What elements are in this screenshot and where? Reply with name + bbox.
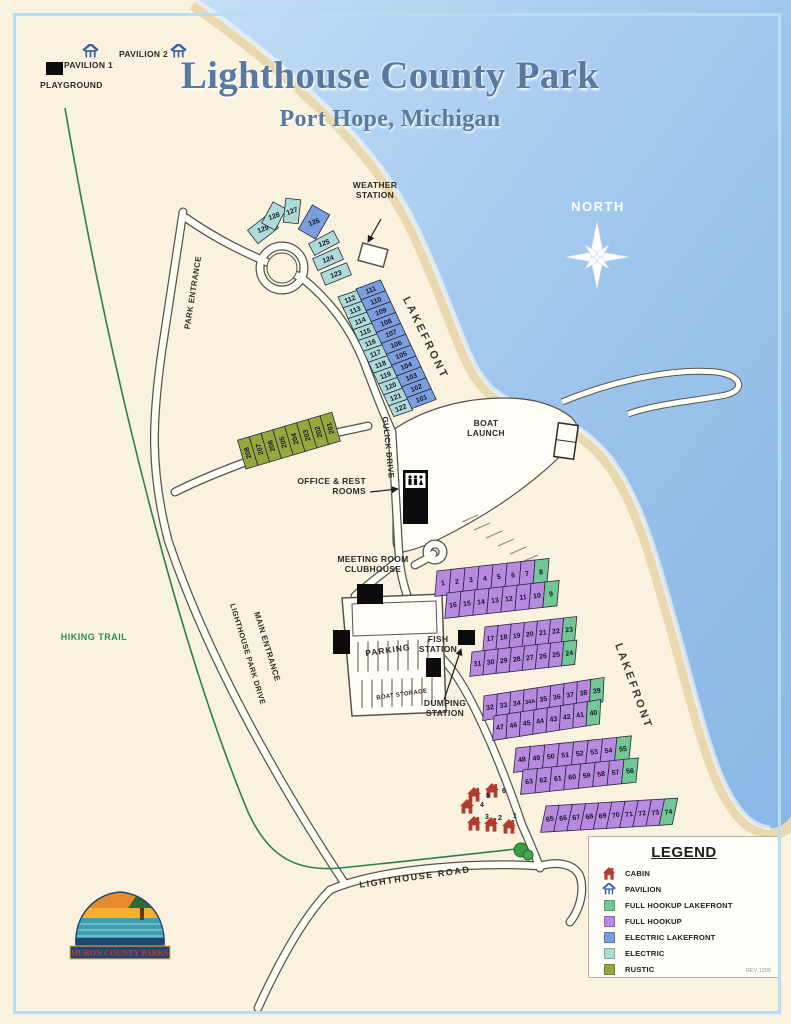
boat-ramp	[554, 423, 579, 459]
legend-swatch-full_hookup	[604, 916, 615, 927]
site-row-rustic_row: 208207206205204203202201	[237, 412, 340, 469]
electric-icon	[601, 947, 617, 960]
site-number-10: 10	[533, 592, 542, 600]
site-number-40: 40	[589, 710, 598, 718]
site-number-12: 12	[505, 596, 514, 604]
site-number-59: 59	[582, 772, 591, 780]
site-number-38: 38	[579, 690, 588, 698]
legend-label-full_hookup_lakefront: FULL HOOKUP LAKEFRONT	[625, 901, 733, 910]
site-number-14: 14	[477, 599, 486, 607]
site-number-29: 29	[499, 657, 508, 665]
legend-swatch-electric_lakefront	[604, 932, 615, 943]
site-number-61: 61	[554, 775, 563, 783]
site-number-51: 51	[561, 752, 570, 760]
site-number-43: 43	[549, 716, 558, 724]
site-number-44: 44	[536, 718, 545, 726]
site-number-68: 68	[585, 813, 594, 821]
site-number-19: 19	[512, 632, 521, 640]
north-label: NORTH	[566, 200, 630, 215]
pavilion1-icon	[83, 44, 98, 57]
cabin-number-2: 2	[498, 815, 502, 822]
site-number-34: 34	[512, 700, 521, 708]
legend-title: LEGEND	[589, 844, 779, 861]
site-number-13: 13	[491, 597, 500, 605]
legend-label-electric_lakefront: ELECTRIC LAKEFRONT	[625, 933, 716, 942]
site-number-50: 50	[547, 753, 556, 761]
legend-items: CABINPAVILIONFULL HOOKUP LAKEFRONTFULL H…	[589, 865, 779, 977]
cabin-icon-4	[460, 799, 474, 814]
site-number-39: 39	[593, 687, 602, 695]
site-number-17: 17	[486, 635, 495, 643]
full_hookup-icon	[601, 915, 617, 928]
site-number-37: 37	[566, 692, 575, 700]
site-number-36: 36	[552, 694, 561, 702]
meeting-room-label: MEETING ROOM CLUBHOUSE	[326, 555, 420, 575]
playground-label: PLAYGROUND	[40, 81, 120, 91]
full_hookup_lakefront-icon	[601, 899, 617, 912]
site-number-60: 60	[568, 774, 577, 782]
site-number-16: 16	[449, 602, 458, 610]
legend-item-electric: ELECTRIC	[589, 945, 779, 961]
legend-item-full_hookup_lakefront: FULL HOOKUP LAKEFRONT	[589, 897, 779, 913]
weather-station-building	[358, 243, 388, 267]
site-number-71: 71	[625, 811, 634, 819]
legend-label-full_hookup: FULL HOOKUP	[625, 917, 682, 926]
legend-swatch-rustic	[604, 964, 615, 975]
site-number-57: 57	[611, 769, 620, 777]
site-number-11: 11	[519, 594, 527, 602]
site-row-block_e: 65666768697071727374	[541, 798, 678, 832]
cabin-icon-1	[502, 819, 516, 834]
site-number-72: 72	[638, 810, 647, 818]
site-number-23: 23	[565, 626, 574, 634]
loop-island	[267, 253, 297, 283]
page-title: Lighthouse County Park	[150, 54, 630, 99]
legend-label-cabin: CABIN	[625, 869, 650, 878]
boat-launch-label: BOAT LAUNCH	[458, 419, 514, 439]
hiking-trail-label: HIKING TRAIL	[46, 632, 142, 642]
legend-item-cabin: CABIN	[589, 865, 779, 881]
rustic-icon	[601, 963, 617, 976]
electric_lakefront-icon	[601, 931, 617, 944]
site-number-46: 46	[509, 722, 518, 730]
site-number-48: 48	[518, 756, 527, 764]
site-number-41: 41	[576, 712, 585, 720]
cabin-icon-5	[467, 787, 481, 802]
legend-revision: REV 1209	[746, 968, 771, 974]
pavilion-icon	[601, 883, 617, 896]
site-number-74: 74	[664, 808, 673, 816]
pavilion2-label: PAVILION 2	[108, 50, 168, 60]
pavilion1-label: PAVILION 1	[64, 61, 134, 71]
legend-label-electric: ELECTRIC	[625, 949, 665, 958]
site-number-18: 18	[499, 634, 508, 642]
site-number-31: 31	[473, 660, 482, 668]
park-map-page: 1121131141151161171181191201211221111101…	[0, 0, 791, 1024]
cabin-number-1: 1	[513, 813, 517, 820]
site-number-45: 45	[522, 720, 531, 728]
site-number-73: 73	[651, 809, 660, 817]
site-number-56: 56	[626, 768, 635, 776]
legend-item-pavilion: PAVILION	[589, 881, 779, 897]
logo-text: HURON COUNTY PARKS	[72, 949, 169, 958]
site-number-20: 20	[526, 631, 535, 639]
cabin-number-5: 5	[486, 793, 490, 800]
legend-swatch-full_hookup_lakefront	[604, 900, 615, 911]
cabin-number-4: 4	[480, 802, 484, 809]
site-number-63: 63	[525, 778, 534, 786]
site-number-33: 33	[499, 702, 508, 710]
huron-county-parks-logo: HURON COUNTY PARKS	[70, 882, 170, 959]
dune-hatching	[462, 515, 538, 562]
site-number-47: 47	[496, 724, 505, 732]
site-number-62: 62	[539, 777, 548, 785]
site-number-58: 58	[597, 771, 606, 779]
cabin-icon	[601, 867, 617, 880]
page-subtitle: Port Hope, Michigan	[150, 106, 630, 134]
legend-swatch-electric	[604, 948, 615, 959]
site-number-53: 53	[590, 749, 599, 757]
site-number-35: 35	[539, 696, 548, 704]
site-number-26: 26	[539, 653, 548, 661]
legend-label-rustic: RUSTIC	[625, 965, 654, 974]
site-number-15: 15	[463, 600, 472, 608]
fish-station-label: FISH STATION	[414, 635, 462, 655]
cabin-icon-3	[467, 816, 481, 831]
legend-label-pavilion: PAVILION	[625, 885, 661, 894]
cabin-number-6: 6	[502, 788, 506, 795]
weather-station-label: WEATHER STATION	[342, 181, 408, 201]
fish-station-building	[426, 658, 441, 677]
site-number-55: 55	[619, 746, 628, 754]
site-number-30: 30	[486, 659, 495, 667]
legend-item-full_hookup: FULL HOOKUP	[589, 913, 779, 929]
site-number-22: 22	[552, 628, 561, 636]
site-number-27: 27	[526, 654, 535, 662]
site-number-70: 70	[611, 812, 620, 820]
site-number-21: 21	[539, 629, 548, 637]
site-number-42: 42	[562, 714, 571, 722]
site-number-49: 49	[532, 755, 541, 763]
dumping-station-label: DUMPING STATION	[416, 699, 474, 719]
site-number-28: 28	[513, 656, 522, 664]
office-restrooms-building	[403, 470, 428, 524]
site-number-54: 54	[604, 747, 613, 755]
site-number-24: 24	[565, 650, 574, 658]
legend: LEGEND CABINPAVILIONFULL HOOKUP LAKEFRON…	[588, 836, 780, 978]
office-label: OFFICE & REST ROOMS	[294, 477, 366, 497]
legend-item-electric_lakefront: ELECTRIC LAKEFRONT	[589, 929, 779, 945]
site-number-69: 69	[598, 812, 607, 820]
site-number-65: 65	[546, 816, 555, 824]
site-number-66: 66	[559, 815, 568, 823]
site-number-52: 52	[575, 750, 584, 758]
meeting-room-building	[357, 584, 383, 604]
site-number-32: 32	[486, 704, 495, 712]
site-number-67: 67	[572, 814, 581, 822]
playground-marker	[46, 62, 63, 75]
west-building	[333, 630, 350, 654]
site-number-25: 25	[552, 651, 561, 659]
